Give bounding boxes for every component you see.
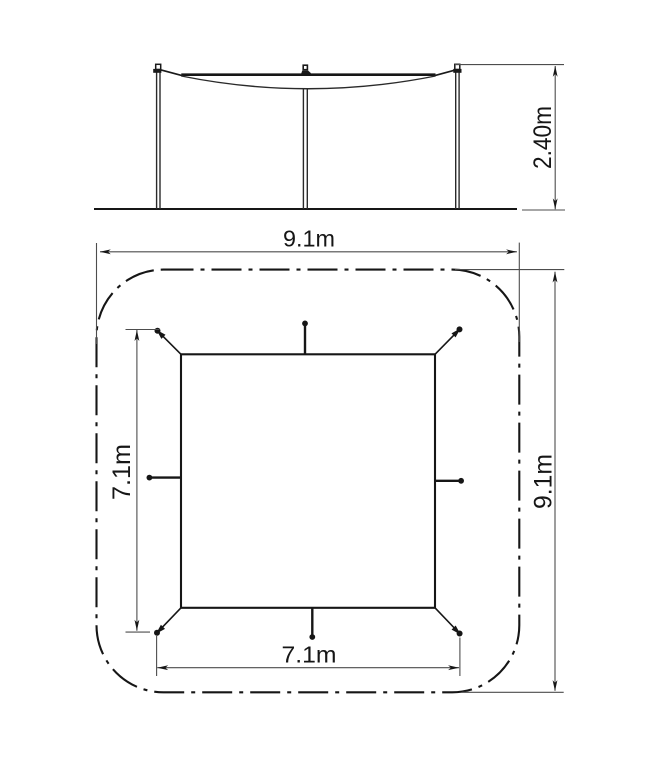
svg-text:9.1m: 9.1m [530,454,558,509]
svg-text:7.1m: 7.1m [282,642,337,668]
svg-text:9.1m: 9.1m [283,226,335,252]
svg-text:7.1m: 7.1m [108,444,136,500]
svg-text:2.40m: 2.40m [529,106,557,169]
